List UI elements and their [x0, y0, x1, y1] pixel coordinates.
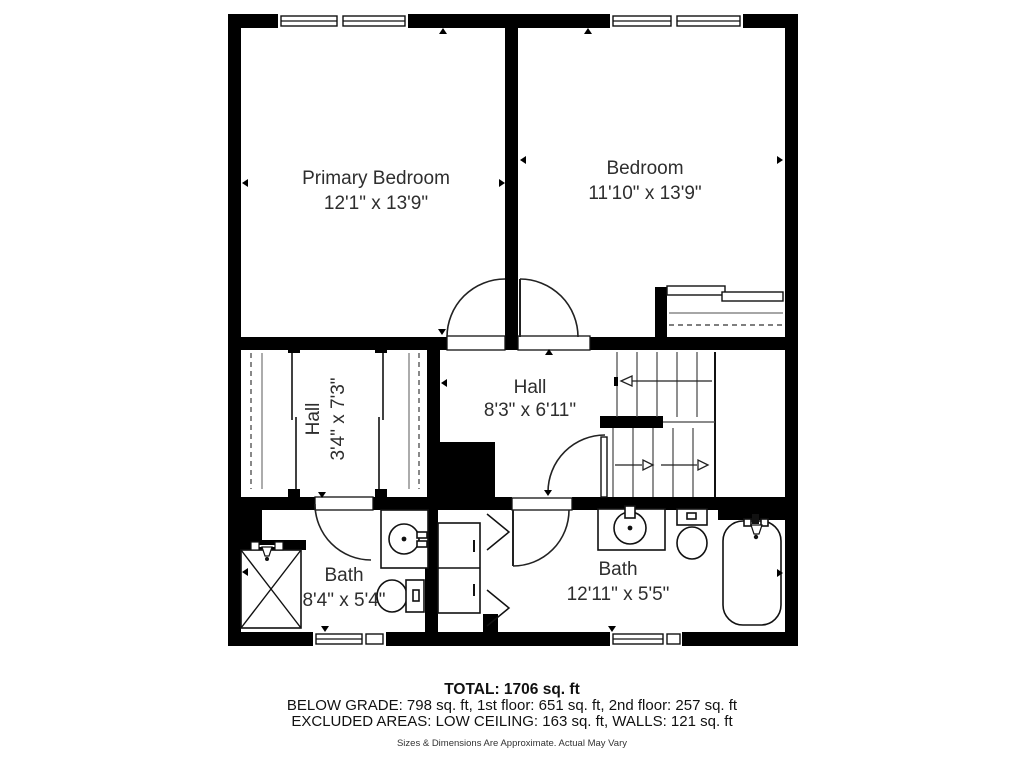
- door-leaf-hall: [601, 437, 607, 497]
- tub-valve: [744, 519, 751, 526]
- wall-bedroom-closet-stub: [655, 287, 667, 350]
- room-dims-bedroom: 11'10" x 13'9": [588, 183, 701, 204]
- door-threshold-bedroom: [518, 336, 590, 350]
- total-area-text: TOTAL: 1706 sq. ft: [0, 682, 1024, 698]
- window-bath-right: [610, 632, 682, 646]
- room-label-bath-right: Bath: [598, 559, 637, 580]
- room-label-hall: Hall: [514, 377, 547, 398]
- tub-spout: [752, 514, 759, 524]
- excluded-areas-text: EXCLUDED AREAS: LOW CEILING: 163 sq. ft,…: [0, 714, 1024, 730]
- window-primary-bedroom: [278, 14, 408, 28]
- floorplan-svg: Primary Bedroom 12'1" x 13'9" Bedroom 11…: [0, 0, 1024, 768]
- sink-left: [381, 510, 428, 568]
- wall-stair-landing-stub: [600, 416, 663, 428]
- room-dims-hall-small: 3'4" x 7'3": [328, 377, 349, 460]
- room-label-hall-small: Hall: [303, 403, 324, 436]
- wall-chase: [433, 442, 495, 497]
- room-dims-bath-left: 8'4" x 5'4": [302, 590, 385, 611]
- sink-faucet: [625, 506, 635, 518]
- sliding-door-track: [667, 286, 725, 295]
- sink-right: [598, 506, 665, 550]
- toilet-bowl-icon: [677, 527, 707, 559]
- window-pane: [366, 634, 383, 644]
- wall-tub-header: [718, 507, 785, 520]
- shower-valve: [251, 542, 259, 550]
- toilet-right: [677, 509, 707, 559]
- sink-drain: [402, 537, 407, 542]
- wall-bath-band-2: [373, 497, 512, 510]
- room-label-bedroom: Bedroom: [606, 158, 683, 179]
- shower-valve: [275, 542, 283, 550]
- toilet-flush: [687, 513, 696, 519]
- room-dims-primary-bedroom: 12'1" x 13'9": [324, 193, 428, 214]
- wall-bedroom-divider: [505, 14, 518, 350]
- area-breakdown-text: BELOW GRADE: 798 sq. ft, 1st floor: 651 …: [0, 698, 1024, 714]
- sink-drain: [628, 526, 633, 531]
- room-dims-bath-right: 12'11" x 5'5": [567, 584, 670, 605]
- floorplan-page: Primary Bedroom 12'1" x 13'9" Bedroom 11…: [0, 0, 1024, 768]
- bathtub-icon: [723, 521, 781, 625]
- bathtub: [723, 514, 781, 625]
- tub-drain: [754, 535, 758, 539]
- room-label-bath-left: Bath: [324, 565, 363, 586]
- wall-left: [228, 14, 241, 646]
- wall-closet-stub-tl: [288, 337, 300, 353]
- disclaimer-text: Sizes & Dimensions Are Approximate. Actu…: [0, 738, 1024, 749]
- room-label-primary-bedroom: Primary Bedroom: [302, 168, 450, 189]
- arrow-tick: [614, 377, 618, 386]
- window-bath-left: [313, 632, 386, 646]
- sink-faucet: [417, 532, 427, 538]
- toilet-flush: [413, 590, 419, 601]
- footer: TOTAL: 1706 sq. ft BELOW GRADE: 798 sq. …: [0, 682, 1024, 749]
- room-dims-hall: 8'3" x 6'11": [484, 400, 576, 421]
- wall-closet-stub-tr: [375, 337, 387, 353]
- sliding-door-track: [722, 292, 783, 301]
- door-threshold-bath-left: [315, 497, 373, 510]
- wall-right: [785, 14, 798, 646]
- shower-drain: [265, 557, 269, 561]
- window-pane: [667, 634, 680, 644]
- wall-bath-block-left: [228, 497, 262, 542]
- door-threshold-bath-right: [512, 498, 572, 510]
- shower: [241, 542, 301, 628]
- door-threshold-primary-bedroom: [447, 336, 505, 350]
- wall-hall-band-right: [590, 337, 798, 350]
- sink-faucet: [417, 541, 427, 547]
- window-bedroom: [610, 14, 743, 28]
